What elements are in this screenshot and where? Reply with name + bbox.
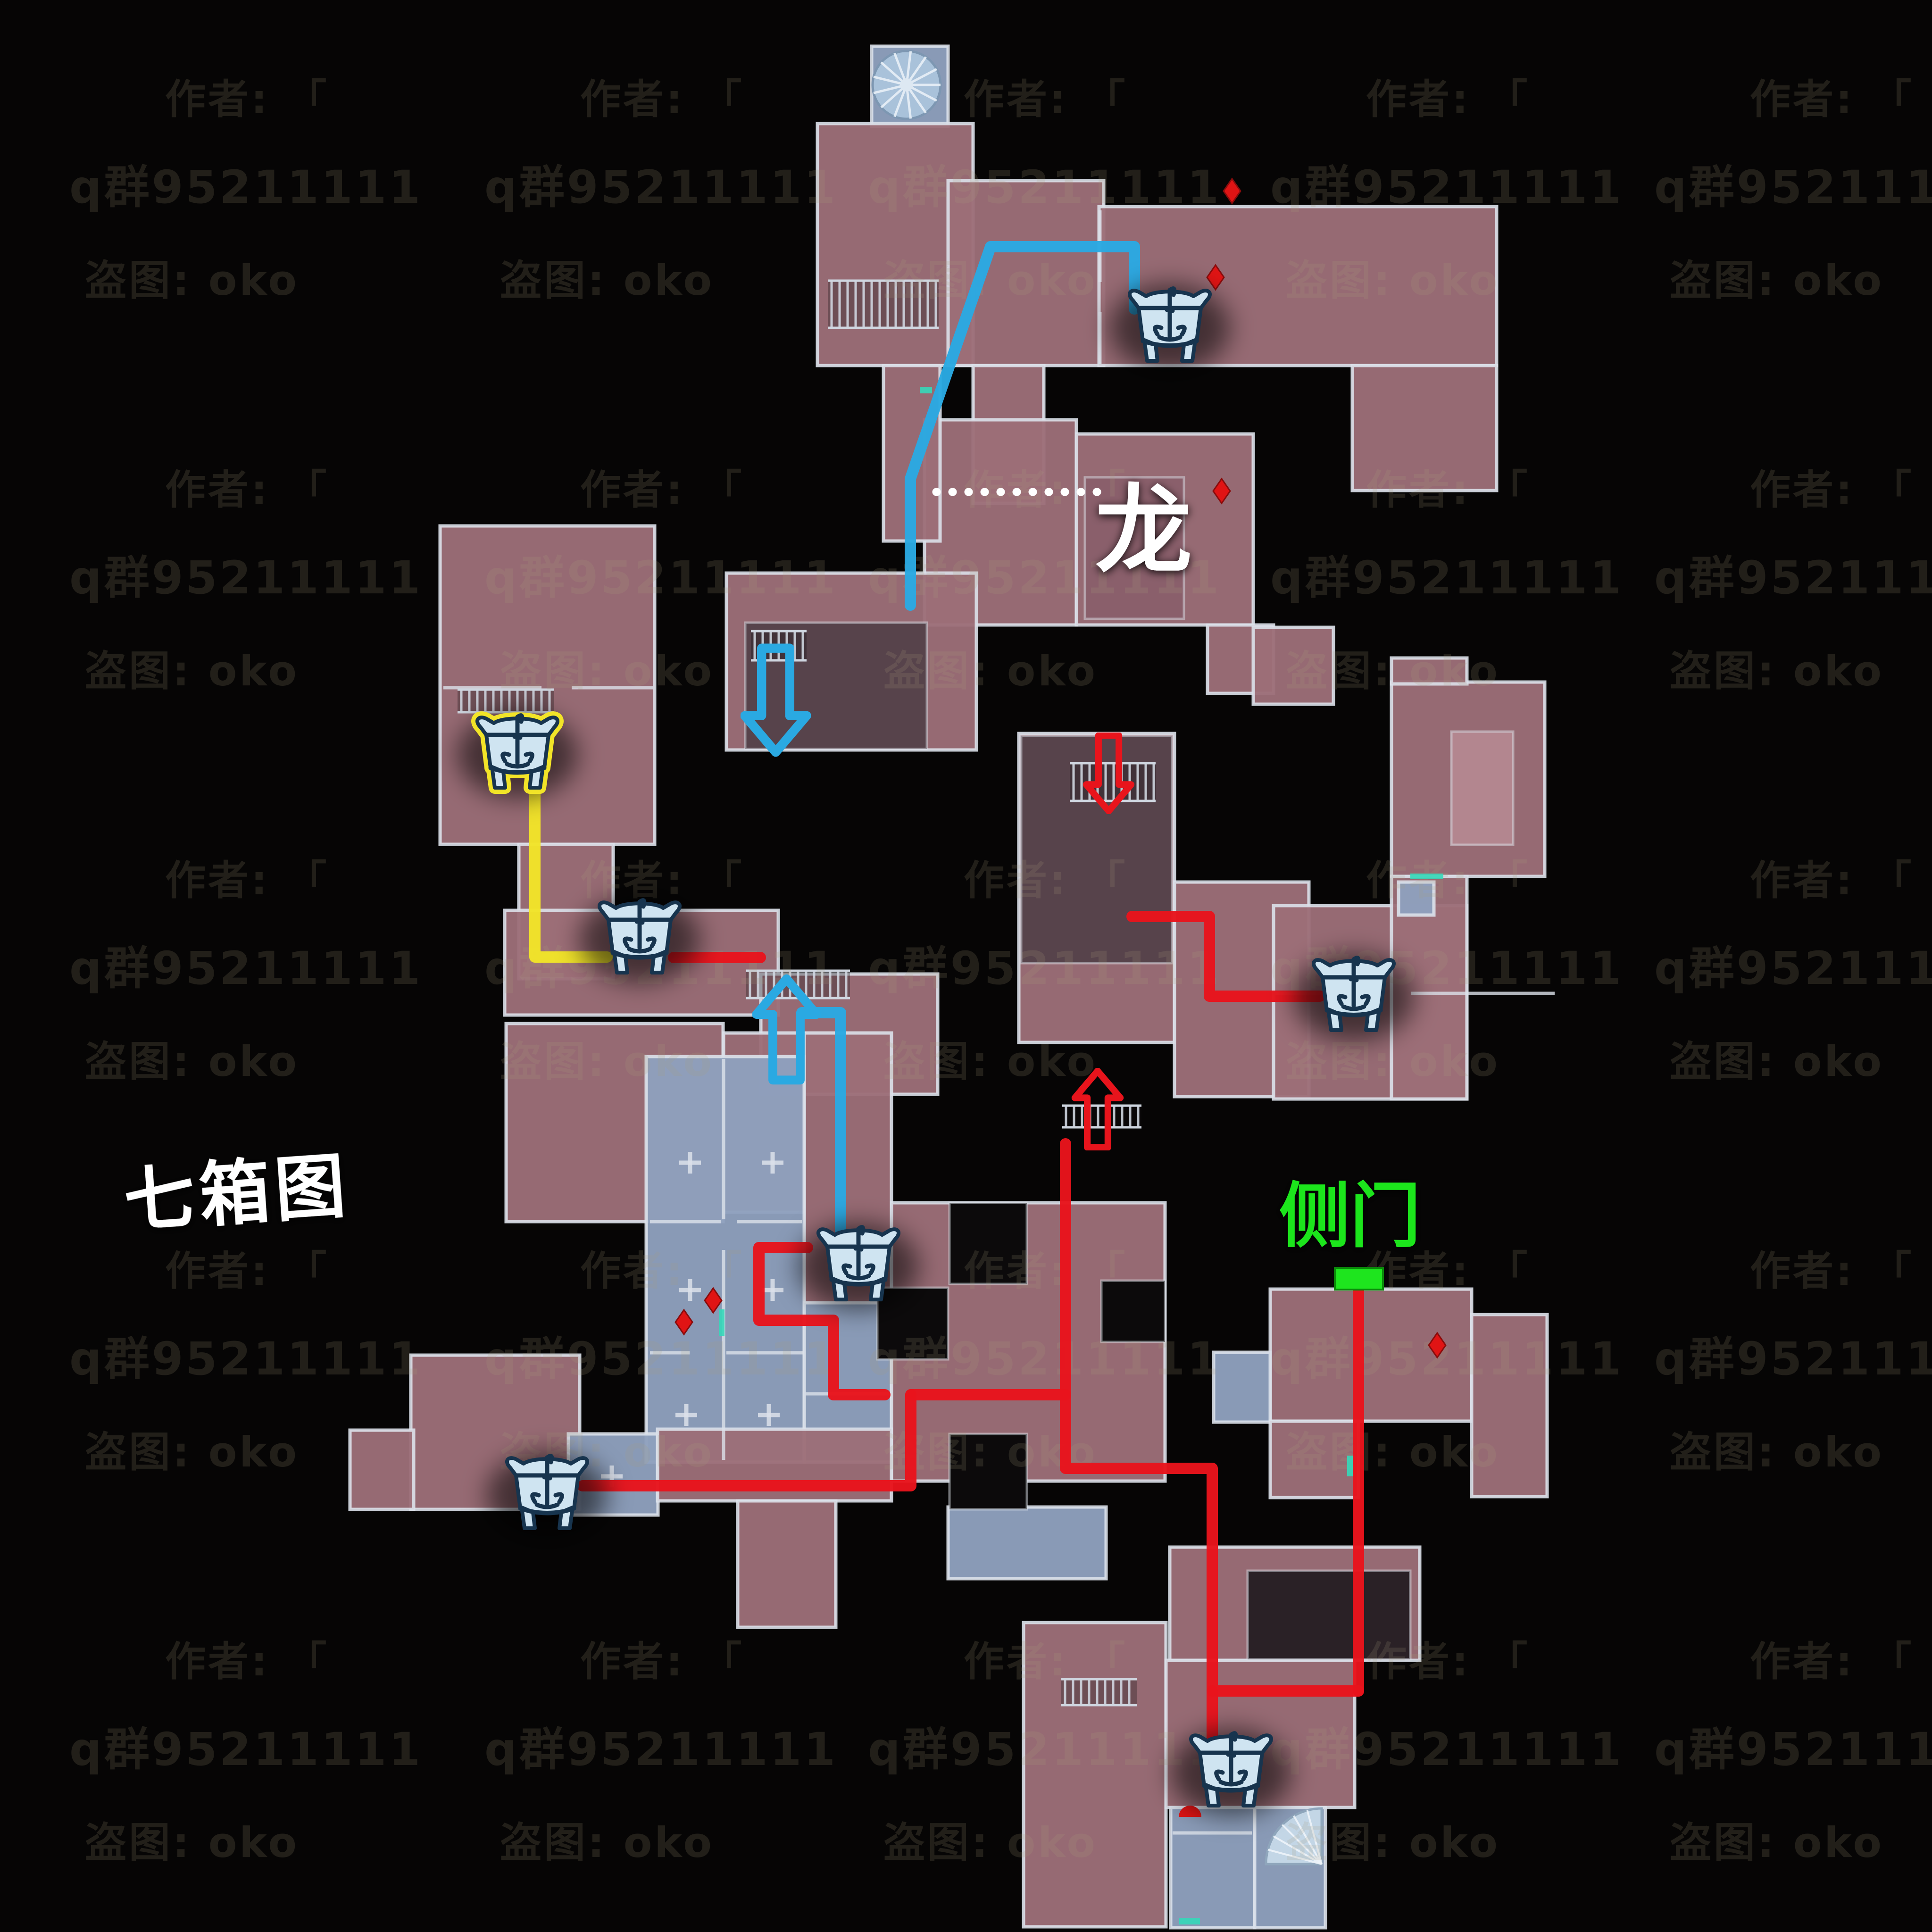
watermark-text: q群95211111 [868, 161, 1221, 214]
label-side-door: 侧门 [1279, 1175, 1421, 1257]
watermark-text: q群95211111 [69, 161, 423, 214]
watermark-text: 作者: 「 [165, 1638, 329, 1685]
door-tick [719, 1309, 724, 1336]
watermark-text: 作者: 「 [1366, 466, 1530, 514]
watermark-text: 作者: 「 [964, 76, 1127, 123]
watermark-text: 盗图: oko [1286, 647, 1500, 695]
door-tick [1179, 1918, 1200, 1924]
watermark-text: q群95211111 [1270, 1332, 1624, 1385]
watermark-text: q群95211111 [484, 161, 838, 214]
watermark-text: q群95211111 [69, 551, 423, 604]
inner-room [1451, 732, 1513, 845]
watermark-text: 盗图: oko [500, 647, 714, 695]
watermark-text: q群95211111 [868, 1332, 1221, 1385]
watermark-text: 盗图: oko [1286, 1037, 1500, 1086]
watermark-text: 作者: 「 [964, 1248, 1127, 1295]
door-tick [920, 387, 932, 393]
watermark-text: 盗图: oko [85, 1428, 299, 1476]
watermark-text: q群95211111 [1654, 1723, 1932, 1776]
gem-marker [1224, 179, 1241, 203]
watermark-text: 作者: 「 [165, 1248, 329, 1295]
watermark-text: 作者: 「 [1366, 1638, 1530, 1685]
watermark-text: q群95211111 [69, 942, 423, 995]
room [738, 1501, 836, 1627]
side-door-marker [1335, 1268, 1383, 1290]
watermark-text: 盗图: oko [1670, 256, 1884, 305]
watermark-text: 作者: 「 [964, 857, 1127, 904]
watermark-text: 作者: 「 [1750, 466, 1914, 514]
watermark-text: 盗图: oko [85, 256, 299, 305]
room [350, 1430, 414, 1509]
watermark-text: 作者: 「 [1750, 1638, 1914, 1685]
spiral-staircase-icon [873, 51, 941, 119]
watermark-text: q群95211111 [484, 1723, 838, 1776]
watermark-text: 作者: 「 [1750, 1248, 1914, 1295]
watermark-text: 盗图: oko [1670, 1037, 1884, 1086]
watermark-text: 作者: 「 [1750, 857, 1914, 904]
watermark-text: 盗图: oko [1286, 256, 1500, 305]
watermark-text: 盗图: oko [1286, 1818, 1500, 1867]
watermark-text: 盗图: oko [85, 1037, 299, 1086]
watermark-text: 作者: 「 [1366, 857, 1530, 904]
watermark-text: 盗图: oko [1670, 1818, 1884, 1867]
room [1214, 1352, 1270, 1422]
room [948, 1507, 1106, 1579]
watermark-text: q群95211111 [868, 1723, 1221, 1776]
watermark-text: 盗图: oko [500, 1818, 714, 1867]
watermark-text: 作者: 「 [580, 1638, 744, 1685]
watermark-text: q群95211111 [1270, 1723, 1624, 1776]
watermark-text: q群95211111 [69, 1723, 423, 1776]
watermark-text: q群95211111 [868, 942, 1221, 995]
watermark-text: 盗图: oko [1670, 647, 1884, 695]
stair-grating-icon [1070, 763, 1156, 801]
watermark-text: 作者: 「 [580, 857, 744, 904]
watermark-text: q群95211111 [1654, 942, 1932, 995]
watermark-text: 盗图: oko [500, 1037, 714, 1086]
watermark-text: 作者: 「 [580, 76, 744, 123]
watermark-text: 盗图: oko [883, 1818, 1098, 1867]
watermark-text: q群95211111 [1270, 551, 1624, 604]
label-dragon: 龙 [1095, 475, 1192, 587]
chest-icon-highlighted [477, 716, 558, 788]
watermark-text: 盗图: oko [500, 256, 714, 305]
room [1171, 1807, 1255, 1928]
stair-grating-icon [1062, 1106, 1141, 1127]
watermark-text: 作者: 「 [165, 466, 329, 514]
watermark-text: 作者: 「 [580, 466, 744, 514]
watermark-text: q群95211111 [1654, 1332, 1932, 1385]
watermark-text: 盗图: oko [883, 647, 1098, 695]
watermark-text: 作者: 「 [1366, 76, 1530, 123]
watermark-text: 作者: 「 [1750, 76, 1914, 123]
watermark-text: q群95211111 [484, 1332, 838, 1385]
watermark-text: q群95211111 [69, 1332, 423, 1385]
watermark-text: 盗图: oko [1286, 1428, 1500, 1476]
watermark-text: q群95211111 [1654, 161, 1932, 214]
map-canvas: 作者: 「作者: 「作者: 「作者: 「作者: 「q群95211111q群952… [0, 0, 1932, 1932]
watermark-text: 盗图: oko [883, 1037, 1098, 1086]
watermark-text: 盗图: oko [85, 647, 299, 695]
watermark-text: q群95211111 [1270, 161, 1624, 214]
watermark-text: 作者: 「 [165, 76, 329, 123]
watermark-text: 作者: 「 [964, 1638, 1127, 1685]
door-tick [1410, 874, 1443, 879]
door-tick [1347, 1456, 1353, 1476]
watermark-text: 作者: 「 [580, 1248, 744, 1295]
watermark-text: q群95211111 [1654, 551, 1932, 604]
label-map-title: 七箱图 [121, 1145, 353, 1242]
watermark-text: 盗图: oko [85, 1818, 299, 1867]
watermark-text: q群95211111 [484, 551, 838, 604]
watermark-text: 盗图: oko [1670, 1428, 1884, 1476]
watermark-text: 作者: 「 [165, 857, 329, 904]
game-map: 作者: 「作者: 「作者: 「作者: 「作者: 「q群95211111q群952… [0, 0, 1932, 1932]
